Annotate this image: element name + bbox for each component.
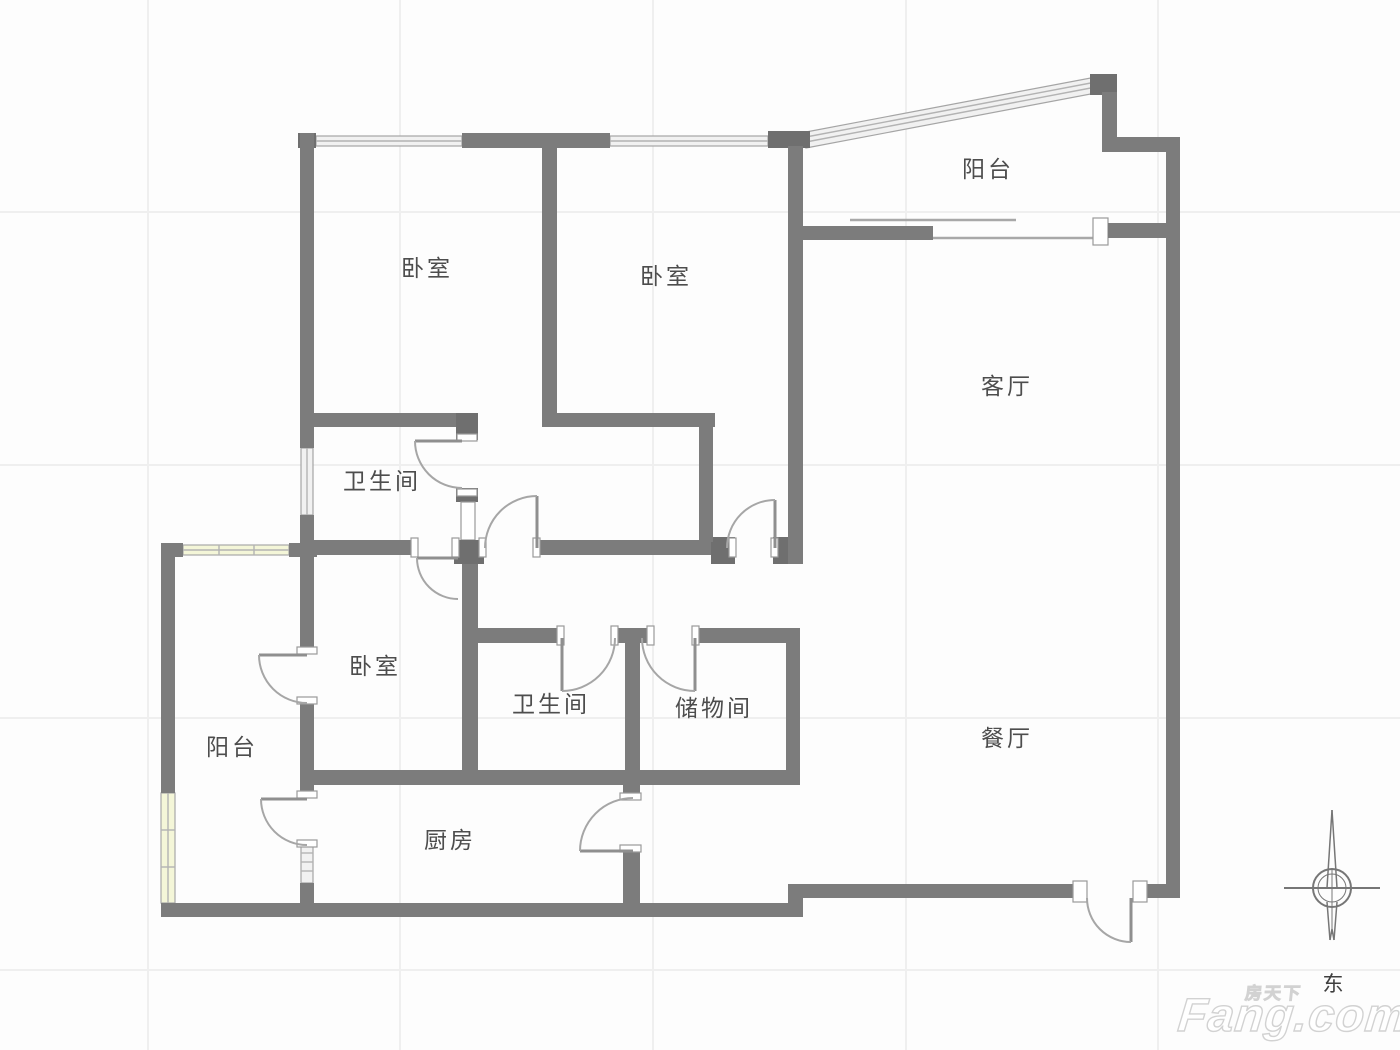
room-label-living-room: 客厅 — [981, 373, 1033, 399]
room-labels: 卧室 卧室 阳台 客厅 卫生间 卧室 阳台 卫生间 储物间 餐厅 厨房 — [206, 156, 1033, 853]
room-label-bedroom-3: 卧室 — [349, 653, 401, 679]
compass-icon: 东 — [1284, 810, 1380, 996]
room-label-balcony-left: 阳台 — [206, 734, 258, 760]
room-label-bathroom-1: 卫生间 — [343, 468, 421, 494]
watermark-en: Fang.com — [1176, 988, 1400, 1041]
doors — [259, 441, 1131, 942]
room-label-bedroom-2: 卧室 — [640, 263, 692, 289]
room-label-storage: 储物间 — [675, 695, 753, 721]
fang-watermark: 房天下 Fang.com — [1176, 983, 1400, 1041]
room-label-bathroom-2: 卫生间 — [512, 691, 590, 717]
room-label-bedroom-1: 卧室 — [401, 255, 453, 281]
room-label-balcony-top: 阳台 — [962, 156, 1014, 182]
room-label-kitchen: 厨房 — [424, 827, 476, 853]
floor-plan: 卧室 卧室 阳台 客厅 卫生间 卧室 阳台 卫生间 储物间 餐厅 厨房 东 房天… — [0, 0, 1400, 1050]
floor-plan-svg: 卧室 卧室 阳台 客厅 卫生间 卧室 阳台 卫生间 储物间 餐厅 厨房 东 房天… — [0, 0, 1400, 1050]
room-label-dining-room: 餐厅 — [981, 725, 1033, 751]
